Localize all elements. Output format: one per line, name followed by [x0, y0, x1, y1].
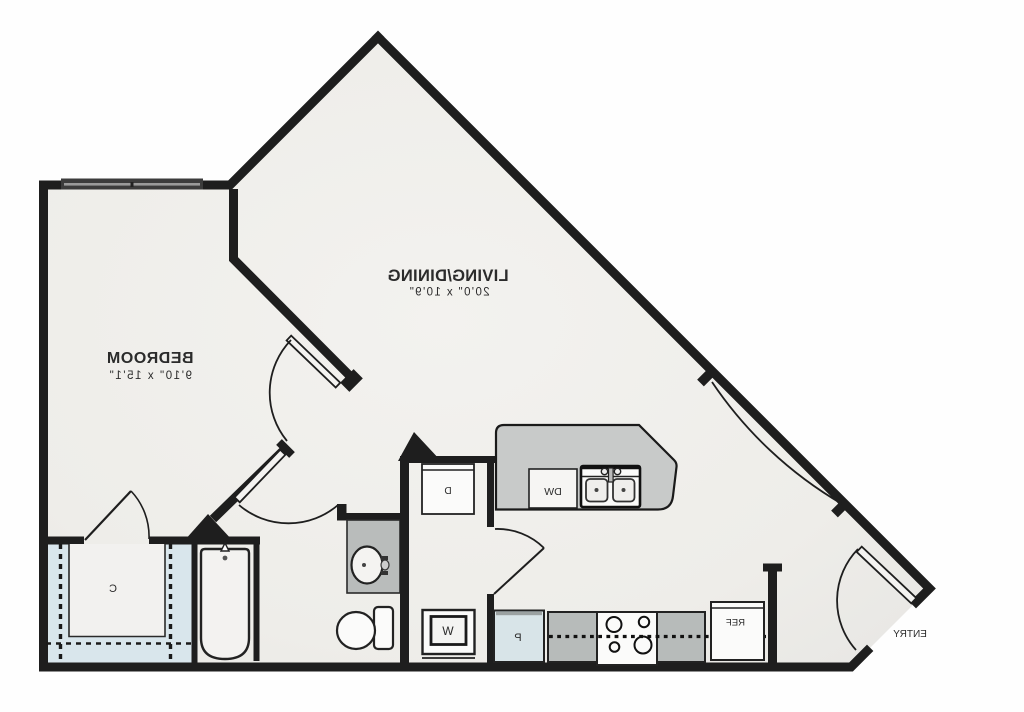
svg-text:20'0" x 10'9": 20'0" x 10'9" — [408, 287, 489, 299]
svg-text:LIVING/DINING: LIVING/DINING — [387, 267, 508, 285]
svg-text:DW: DW — [544, 486, 562, 498]
svg-text:D: D — [444, 486, 451, 497]
svg-text:REF: REF — [726, 618, 745, 629]
svg-text:ENTRY: ENTRY — [893, 629, 927, 640]
svg-text:BEDROOM: BEDROOM — [106, 350, 193, 367]
svg-text:P: P — [514, 632, 521, 644]
svg-text:W: W — [442, 624, 454, 638]
svg-text:9'10" x 15'1": 9'10" x 15'1" — [108, 370, 192, 382]
svg-text:C: C — [109, 583, 117, 595]
